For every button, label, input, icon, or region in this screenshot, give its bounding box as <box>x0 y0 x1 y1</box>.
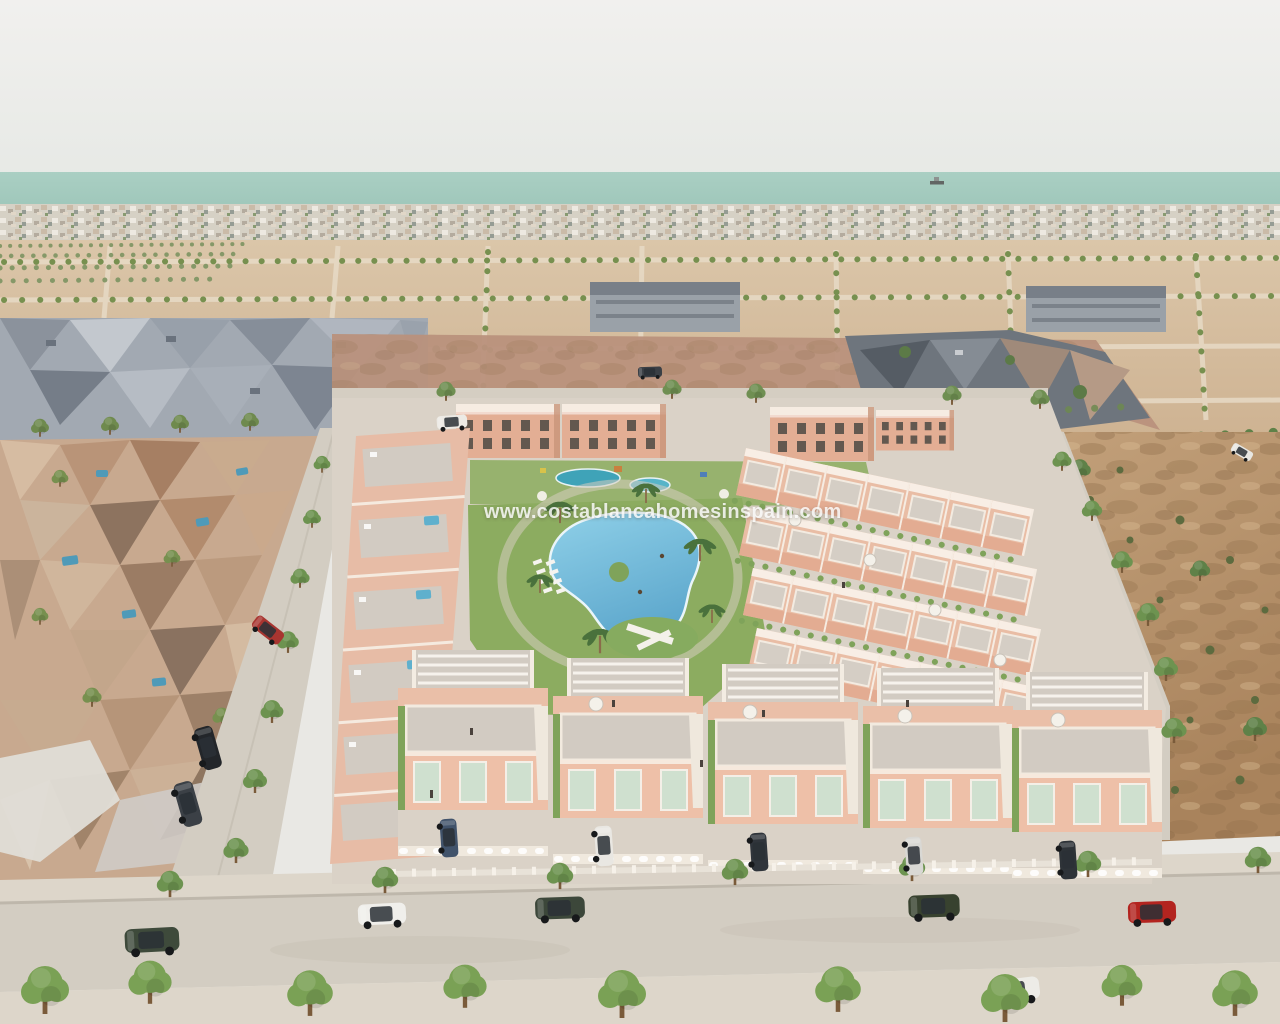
construction-building <box>1026 286 1166 332</box>
front-courtyard <box>606 617 698 659</box>
construction-building <box>590 282 740 332</box>
scene-canvas <box>0 0 1280 1024</box>
new-development <box>330 380 1166 884</box>
aerial-render: www.costablancahomesinspain.com <box>0 0 1280 1024</box>
